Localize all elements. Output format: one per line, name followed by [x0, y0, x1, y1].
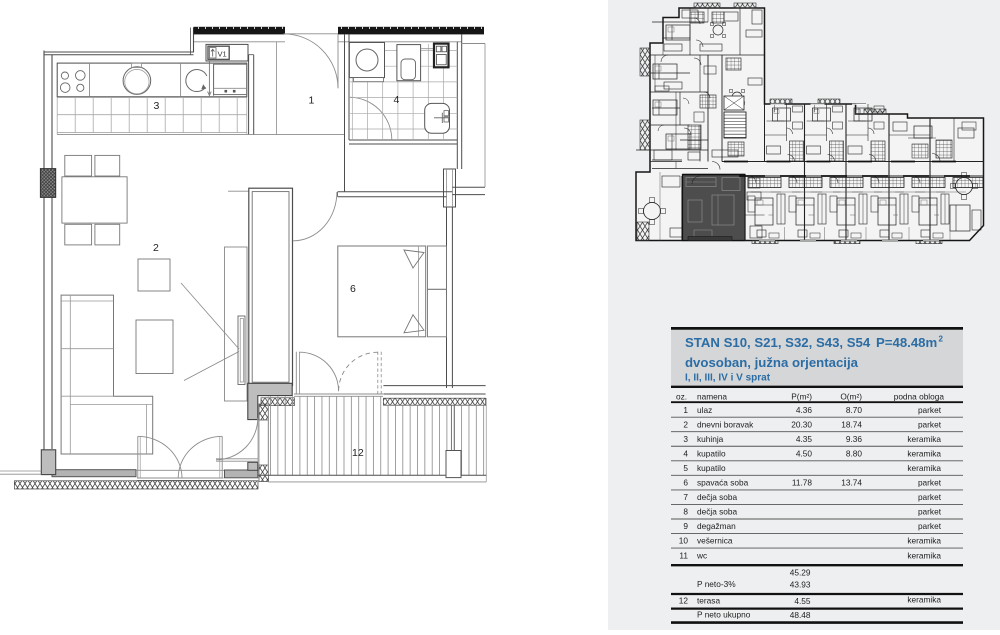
svg-text:kupatilo: kupatilo: [697, 463, 726, 473]
svg-text:10: 10: [679, 536, 689, 546]
svg-text:degažman: degažman: [697, 521, 736, 531]
svg-text:dečja soba: dečja soba: [697, 492, 738, 502]
svg-text:1: 1: [683, 405, 688, 415]
svg-text:9: 9: [683, 521, 688, 531]
svg-text:7: 7: [683, 492, 688, 502]
svg-text:keramika: keramika: [907, 595, 941, 605]
svg-text:dvosoban, južna orjentacija: dvosoban, južna orjentacija: [685, 355, 859, 370]
svg-text:2: 2: [683, 419, 688, 429]
svg-text:STAN S10, S21, S32, S43, S54: STAN S10, S21, S32, S43, S54: [685, 335, 871, 350]
svg-text:20.30: 20.30: [791, 419, 812, 429]
svg-text:4.50: 4.50: [796, 448, 813, 458]
svg-text:oz.: oz.: [676, 391, 687, 401]
svg-text:48.48: 48.48: [790, 610, 811, 620]
svg-text:9.36: 9.36: [846, 434, 863, 444]
svg-text:11.78: 11.78: [792, 478, 813, 488]
svg-text:5: 5: [683, 463, 688, 473]
svg-text:I, II, III, IV i V sprat: I, II, III, IV i V sprat: [685, 373, 771, 384]
svg-text:keramika: keramika: [907, 550, 941, 560]
svg-text:P neto ukupno: P neto ukupno: [697, 609, 751, 619]
svg-text:18.74: 18.74: [841, 419, 862, 429]
svg-text:parket: parket: [918, 521, 942, 531]
svg-text:kupatilo: kupatilo: [697, 448, 726, 458]
svg-text:keramika: keramika: [907, 434, 941, 444]
svg-text:P neto-3%: P neto-3%: [697, 579, 736, 589]
svg-text:13.74: 13.74: [841, 478, 862, 488]
svg-text:keramika: keramika: [907, 536, 941, 546]
svg-text:12: 12: [352, 447, 364, 459]
svg-text:4.55: 4.55: [794, 596, 811, 606]
svg-text:43.93: 43.93: [790, 580, 811, 590]
svg-text:dnevni boravak: dnevni boravak: [697, 419, 754, 429]
svg-text:O(m²): O(m²): [840, 391, 862, 401]
svg-text:parket: parket: [918, 478, 942, 488]
svg-text:2: 2: [939, 335, 944, 344]
svg-text:P=48.48m: P=48.48m: [876, 335, 937, 350]
svg-text:spavaća soba: spavaća soba: [697, 478, 749, 488]
svg-text:12: 12: [679, 595, 689, 605]
svg-text:8: 8: [683, 507, 688, 517]
svg-text:2: 2: [153, 242, 159, 254]
svg-text:kuhinja: kuhinja: [697, 434, 724, 444]
svg-text:8.80: 8.80: [846, 448, 863, 458]
svg-text:parket: parket: [918, 507, 942, 517]
svg-text:1: 1: [309, 95, 315, 107]
svg-text:4.35: 4.35: [796, 434, 813, 444]
svg-text:dečja soba: dečja soba: [697, 507, 738, 517]
svg-text:45.29: 45.29: [790, 568, 811, 578]
svg-text:podna obloga: podna obloga: [894, 391, 945, 401]
svg-text:4: 4: [394, 94, 400, 106]
svg-text:vešernica: vešernica: [697, 536, 733, 546]
svg-text:parket: parket: [918, 419, 942, 429]
svg-text:6: 6: [683, 478, 688, 488]
svg-text:keramika: keramika: [907, 448, 941, 458]
svg-text:V1: V1: [218, 50, 227, 59]
svg-text:wc: wc: [696, 550, 707, 560]
svg-text:3: 3: [683, 434, 688, 444]
svg-text:3: 3: [154, 100, 160, 112]
svg-text:ulaz: ulaz: [697, 405, 712, 415]
svg-text:6: 6: [350, 283, 356, 295]
svg-text:8.70: 8.70: [846, 405, 863, 415]
svg-text:parket: parket: [918, 492, 942, 502]
svg-text:terasa: terasa: [697, 595, 720, 605]
svg-text:namena: namena: [697, 391, 727, 401]
svg-text:keramika: keramika: [907, 463, 941, 473]
svg-text:P(m²): P(m²): [791, 391, 812, 401]
svg-text:4.36: 4.36: [796, 405, 813, 415]
svg-text:4: 4: [683, 448, 688, 458]
svg-text:parket: parket: [918, 405, 942, 415]
svg-text:11: 11: [679, 550, 688, 560]
